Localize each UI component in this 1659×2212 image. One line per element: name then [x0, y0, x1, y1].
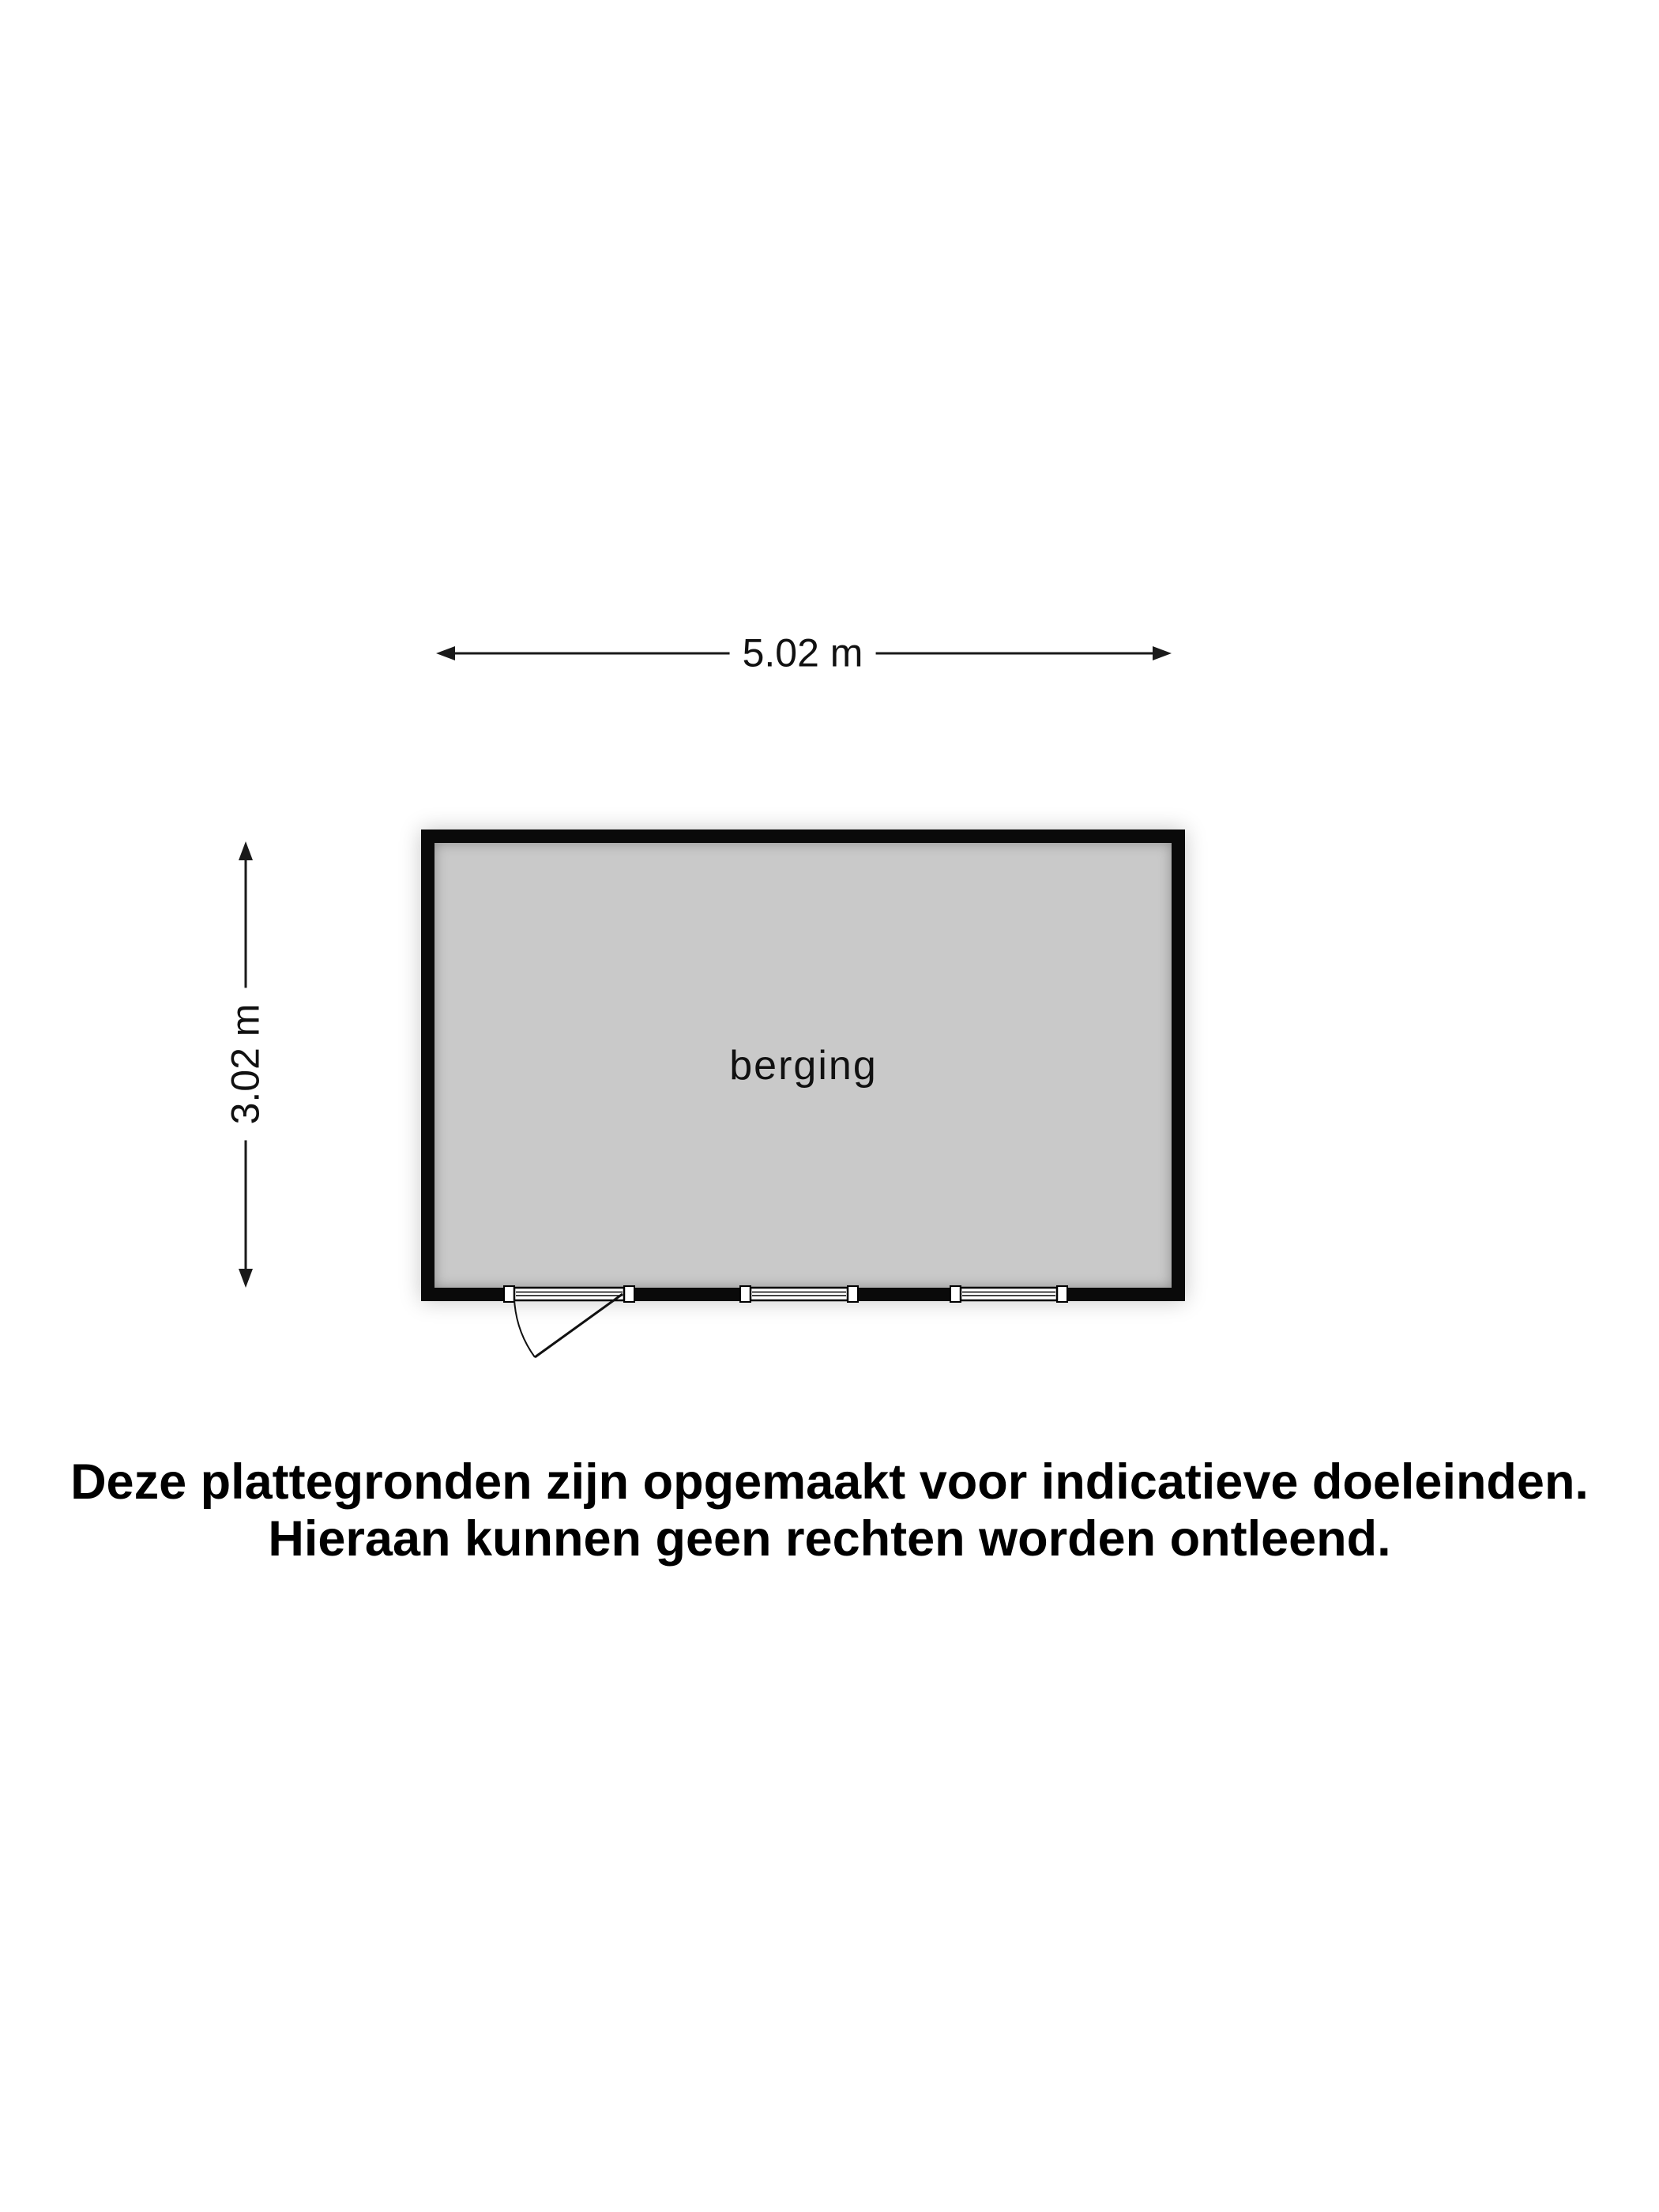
door-leaf [535, 1294, 623, 1357]
jamb [950, 1286, 961, 1302]
jamb [624, 1286, 634, 1302]
jamb [504, 1286, 514, 1302]
window-panel [961, 1288, 1057, 1300]
height-dimension-label: 3.02 m [224, 988, 268, 1141]
disclaimer-line-1: Deze plattegronden zijn opgemaakt voor i… [0, 1454, 1659, 1510]
disclaimer: Deze plattegronden zijn opgemaakt voor i… [0, 1454, 1659, 1567]
window [750, 1288, 848, 1300]
width-dimension-label: 5.02 m [730, 632, 876, 675]
floorplan-page: 5.02 m 3.02 m berging Deze plattegronden… [0, 0, 1659, 2212]
disclaimer-line-2: Hieraan kunnen geen rechten worden ontle… [0, 1510, 1659, 1567]
door-panel [514, 1288, 624, 1300]
arrow-up-icon [239, 841, 253, 860]
room-label: berging [729, 1042, 877, 1089]
arrow-right-icon [1153, 646, 1172, 660]
jamb [848, 1286, 858, 1302]
window-panel [750, 1288, 848, 1300]
door [514, 1288, 624, 1357]
arrow-left-icon [436, 646, 455, 660]
jamb [1057, 1286, 1067, 1302]
door-swing-arc [514, 1300, 535, 1357]
jamb [740, 1286, 750, 1302]
arrow-down-icon [239, 1269, 253, 1288]
window [961, 1288, 1057, 1300]
